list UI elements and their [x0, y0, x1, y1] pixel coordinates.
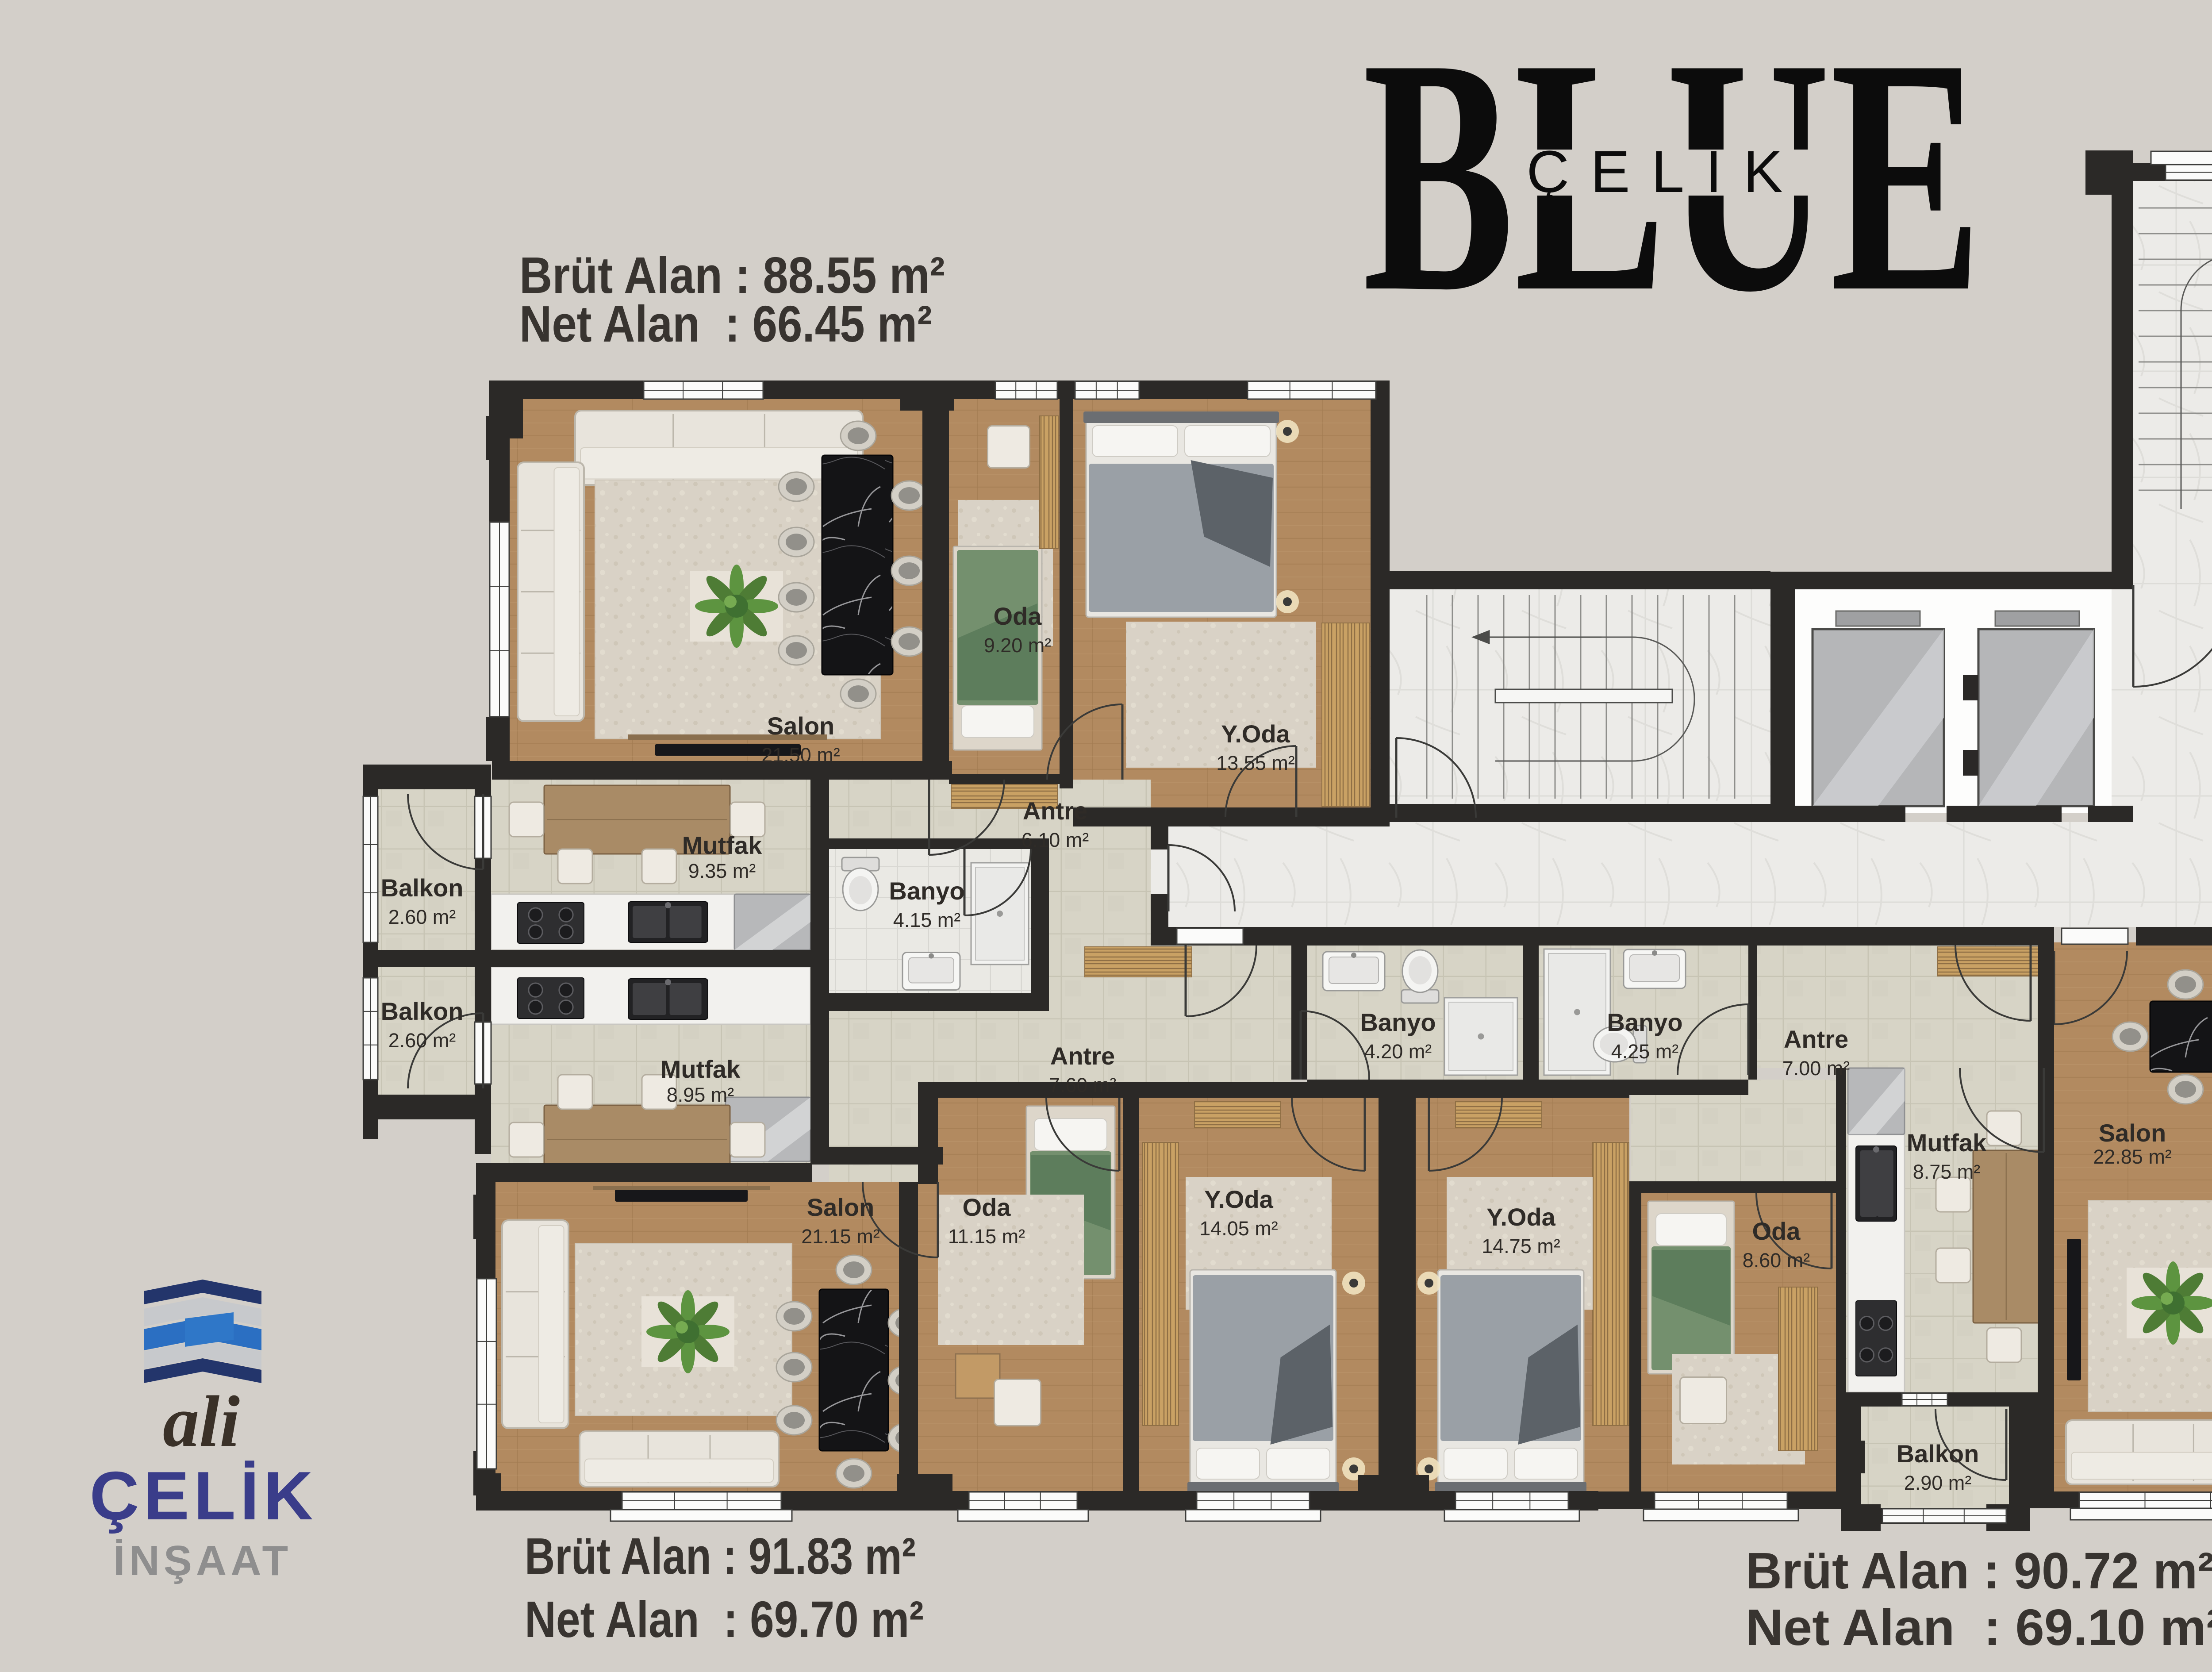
svg-text:Banyo: Banyo	[1360, 1008, 1436, 1036]
svg-text:Net Alan : 69.70 m²: Net Alan : 69.70 m²	[525, 1591, 924, 1648]
svg-text:Mutfak: Mutfak	[1907, 1129, 1987, 1157]
svg-text:Balkon: Balkon	[381, 997, 464, 1025]
svg-text:ÇELİK: ÇELİK	[90, 1457, 318, 1534]
svg-text:22.85 m²: 22.85 m²	[2093, 1145, 2172, 1168]
svg-text:Salon: Salon	[2099, 1119, 2166, 1147]
svg-text:ali: ali	[163, 1381, 240, 1462]
svg-text:Balkon: Balkon	[381, 874, 464, 902]
svg-text:8.60 m²: 8.60 m²	[1743, 1249, 1810, 1272]
svg-text:7.00 m²: 7.00 m²	[1782, 1057, 1850, 1080]
svg-text:Antre: Antre	[1784, 1025, 1848, 1053]
svg-text:8.95 m²: 8.95 m²	[667, 1084, 734, 1106]
svg-text:14.05 m²: 14.05 m²	[1199, 1217, 1278, 1240]
svg-text:Brüt Alan : 91.83 m²: Brüt Alan : 91.83 m²	[525, 1527, 916, 1585]
svg-text:Mutfak: Mutfak	[682, 831, 762, 859]
svg-text:2.60 m²: 2.60 m²	[388, 906, 456, 928]
svg-text:Antre: Antre	[1023, 797, 1087, 825]
svg-text:4.20 m²: 4.20 m²	[1364, 1040, 1432, 1063]
svg-text:Oda: Oda	[994, 602, 1042, 630]
svg-text:2.90 m²: 2.90 m²	[1904, 1472, 1972, 1494]
svg-text:Antre: Antre	[1050, 1042, 1115, 1070]
svg-text:Net Alan : 66.45 m²: Net Alan : 66.45 m²	[519, 295, 932, 353]
svg-text:Oda: Oda	[963, 1193, 1011, 1221]
svg-text:Brüt Alan : 90.72 m²: Brüt Alan : 90.72 m²	[1746, 1542, 2212, 1599]
svg-text:Y.Oda: Y.Oda	[1204, 1185, 1273, 1213]
svg-text:11.15 m²: 11.15 m²	[948, 1225, 1025, 1248]
svg-text:14.75 m²: 14.75 m²	[1482, 1235, 1560, 1257]
svg-text:Y.Oda: Y.Oda	[1221, 720, 1290, 748]
svg-text:7.60 m²: 7.60 m²	[1049, 1074, 1117, 1096]
svg-text:8.75 m²: 8.75 m²	[1913, 1161, 1981, 1183]
svg-text:Y.Oda: Y.Oda	[1486, 1203, 1555, 1231]
svg-text:9.20 m²: 9.20 m²	[984, 634, 1052, 657]
svg-text:Banyo: Banyo	[889, 877, 964, 905]
svg-text:4.15 m²: 4.15 m²	[893, 909, 961, 931]
svg-text:Banyo: Banyo	[1607, 1008, 1682, 1036]
svg-text:Net Alan : 69.10 m²: Net Alan : 69.10 m²	[1746, 1599, 2212, 1656]
svg-text:4.25 m²: 4.25 m²	[1611, 1040, 1679, 1063]
svg-text:Salon: Salon	[767, 712, 834, 740]
svg-text:21.15 m²: 21.15 m²	[801, 1225, 880, 1248]
svg-text:2.60 m²: 2.60 m²	[388, 1029, 456, 1052]
svg-text:13.55 m²: 13.55 m²	[1216, 752, 1295, 774]
svg-text:Salon: Salon	[807, 1193, 874, 1221]
svg-text:Mutfak: Mutfak	[661, 1055, 741, 1083]
svg-text:Balkon: Balkon	[1897, 1440, 1979, 1468]
svg-text:9.35 m²: 9.35 m²	[688, 860, 756, 882]
svg-text:ÇELİK: ÇELİK	[1526, 139, 1804, 205]
svg-text:21.50 m²: 21.50 m²	[761, 744, 840, 766]
svg-text:İNŞAAT: İNŞAAT	[113, 1537, 292, 1584]
svg-text:6.10 m²: 6.10 m²	[1022, 829, 1089, 851]
svg-text:Oda: Oda	[1752, 1217, 1801, 1245]
